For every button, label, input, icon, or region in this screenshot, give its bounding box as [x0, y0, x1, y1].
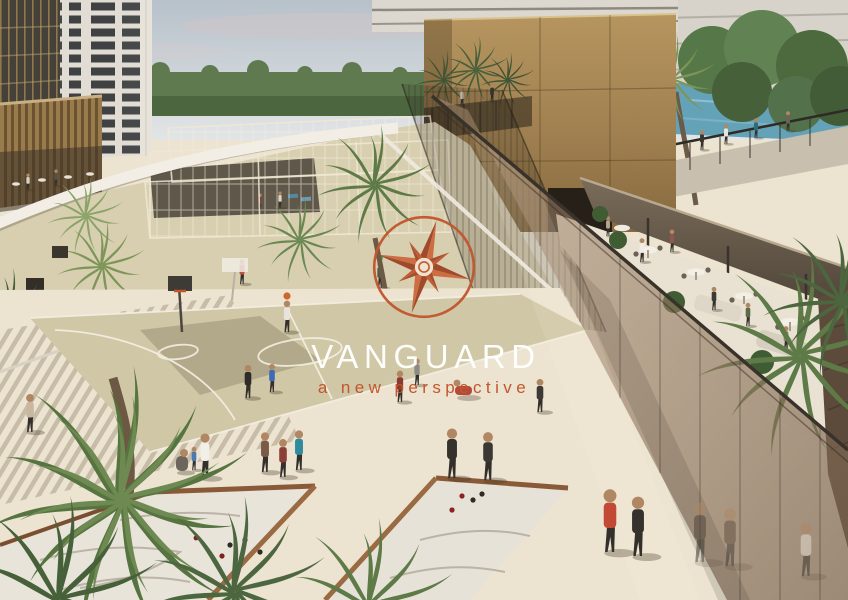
scene-illustration	[0, 0, 848, 600]
architectural-rendering: VANGUARD a new perspective	[0, 0, 848, 600]
tower-left-dark	[0, 0, 64, 110]
